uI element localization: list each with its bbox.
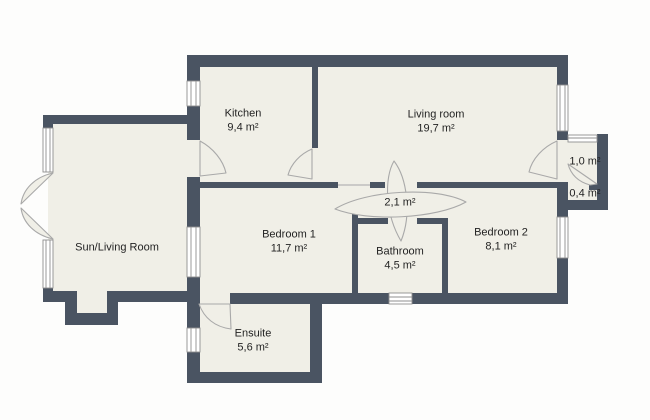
wall [597, 134, 608, 210]
window [43, 240, 53, 288]
wall [557, 200, 608, 210]
wall [187, 372, 322, 383]
wall [557, 182, 568, 217]
floor-plan: Kitchen 9,4 m² Living room 19,7 m² Sun/L… [0, 0, 650, 420]
window [187, 227, 200, 277]
wall [107, 291, 198, 302]
wall-partition [370, 182, 385, 188]
window [43, 128, 53, 172]
wall-partition [417, 182, 557, 188]
floor-areas [48, 60, 603, 378]
wall [412, 293, 568, 304]
window [187, 81, 200, 106]
wall [230, 293, 389, 304]
wall-partition [198, 182, 338, 188]
wall [310, 293, 322, 383]
wall [187, 277, 200, 328]
window [389, 293, 412, 304]
floor-main [192, 60, 562, 299]
wall [187, 55, 568, 67]
wall [107, 302, 118, 325]
window [557, 217, 568, 258]
wall-partition [352, 218, 388, 224]
window [187, 328, 200, 352]
wall [43, 115, 53, 128]
wall-partition [442, 218, 448, 293]
wall [187, 106, 200, 140]
wall-partition [312, 66, 318, 148]
wall [557, 55, 568, 85]
window [557, 85, 568, 131]
wall [43, 115, 187, 124]
floor-plan-drawing [0, 0, 650, 420]
window [568, 135, 597, 142]
wall [187, 55, 200, 81]
floor-balcony [562, 138, 603, 205]
floor-sun-room [48, 119, 192, 297]
wall [557, 131, 568, 140]
